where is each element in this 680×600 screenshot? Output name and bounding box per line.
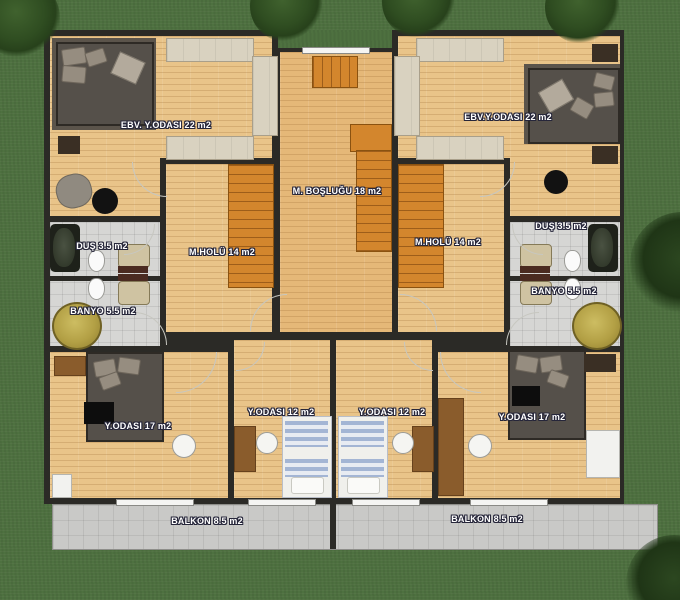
label-bath-right: BANYO 5.5 m2: [531, 286, 596, 296]
label-bath-left: BANYO 5.5 m2: [70, 306, 135, 316]
desk-17-left: [54, 356, 86, 376]
round-table-left: [92, 188, 118, 214]
label-shower-left: DUŞ 3.5 m2: [76, 241, 128, 251]
dresser-17-right: [584, 354, 616, 372]
stairs-stairwell-upper: [312, 56, 358, 88]
label-bedroom12-left: Y.ODASI 12 m2: [248, 407, 315, 417]
pillow: [61, 46, 87, 66]
window-stairwell-top: [302, 47, 370, 54]
pillow: [117, 357, 141, 376]
wardrobe-right-bottom: [416, 136, 504, 160]
toilet-left-shower: [88, 250, 105, 272]
counter-left-bath: [118, 274, 148, 281]
wardrobe-left-bottom: [166, 136, 254, 160]
label-stairwell: M. BOŞLUĞU 18 m2: [293, 186, 382, 196]
pillow: [61, 65, 86, 84]
label-bedroom17-left: Y.ODASI 17 m2: [105, 421, 172, 431]
round-table-right: [544, 170, 568, 194]
wardrobe-17-right: [438, 398, 464, 496]
stairs-stairwell-landing: [350, 124, 392, 152]
bed-single-12-left: [282, 416, 332, 498]
balcony-slab: [52, 504, 658, 550]
chair-17-left: [172, 434, 196, 458]
toilet-right-shower: [564, 250, 581, 272]
desk-17-right: [586, 430, 620, 478]
toilet-left-bath: [88, 278, 105, 300]
window-bedroom12-left: [248, 499, 316, 506]
bench-right: [512, 386, 540, 406]
chair-17-right: [468, 434, 492, 458]
desk-12-left: [234, 426, 256, 472]
dresser-left: [58, 136, 80, 154]
pine-tree: [630, 212, 680, 316]
window-bedroom12-right: [352, 499, 420, 506]
stairs-hall-right: [398, 164, 444, 288]
label-hall-right: M.HOLÜ 14 m2: [415, 237, 481, 247]
label-shower-right: DUŞ 3.5 m2: [535, 221, 587, 231]
label-balcony-right: BALKON 8.5 m2: [451, 514, 523, 524]
bathtub-right: [588, 224, 618, 272]
wardrobe-left-side: [252, 56, 278, 136]
stairs-hall-left: [228, 164, 274, 288]
counter-right-shower: [520, 266, 550, 273]
window-bedroom17-left: [116, 499, 194, 506]
chair-12-left: [256, 432, 278, 454]
chair-12-right: [392, 432, 414, 454]
counter-left-shower: [118, 266, 148, 273]
pillow: [593, 91, 614, 108]
label-hall-left: M.HOLÜ 14 m2: [189, 247, 255, 257]
round-tub-right: [572, 302, 622, 350]
window-bedroom17-right: [470, 499, 548, 506]
wardrobe-right-top: [416, 38, 504, 62]
label-master-bedroom-left: EBV. Y.ODASI 22 m2: [121, 120, 211, 130]
cabinet-17-left: [52, 474, 72, 498]
label-bedroom17-right: Y.ODASI 17 m2: [499, 412, 566, 422]
label-balcony-left: BALKON 8.5 m2: [171, 516, 243, 526]
desk-12-right: [412, 426, 434, 472]
label-master-bedroom-right: EBV.Y.ODASI 22 m2: [464, 112, 552, 122]
counter-right-bath: [520, 274, 550, 281]
balcony-divider-wall: [330, 504, 336, 549]
label-bedroom12-right: Y.ODASI 12 m2: [359, 407, 426, 417]
nightstand-right-top: [592, 44, 618, 62]
stairs-stairwell-run: [356, 150, 392, 252]
wardrobe-right-side: [394, 56, 420, 136]
floor-plan-scene: EBV. Y.ODASI 22 m2 EBV.Y.ODASI 22 m2 M. …: [0, 0, 680, 600]
nightstand-right-bottom: [592, 146, 618, 164]
bed-single-12-right: [338, 416, 388, 498]
sink-left-bath: [118, 281, 150, 305]
wardrobe-left-top: [166, 38, 254, 62]
